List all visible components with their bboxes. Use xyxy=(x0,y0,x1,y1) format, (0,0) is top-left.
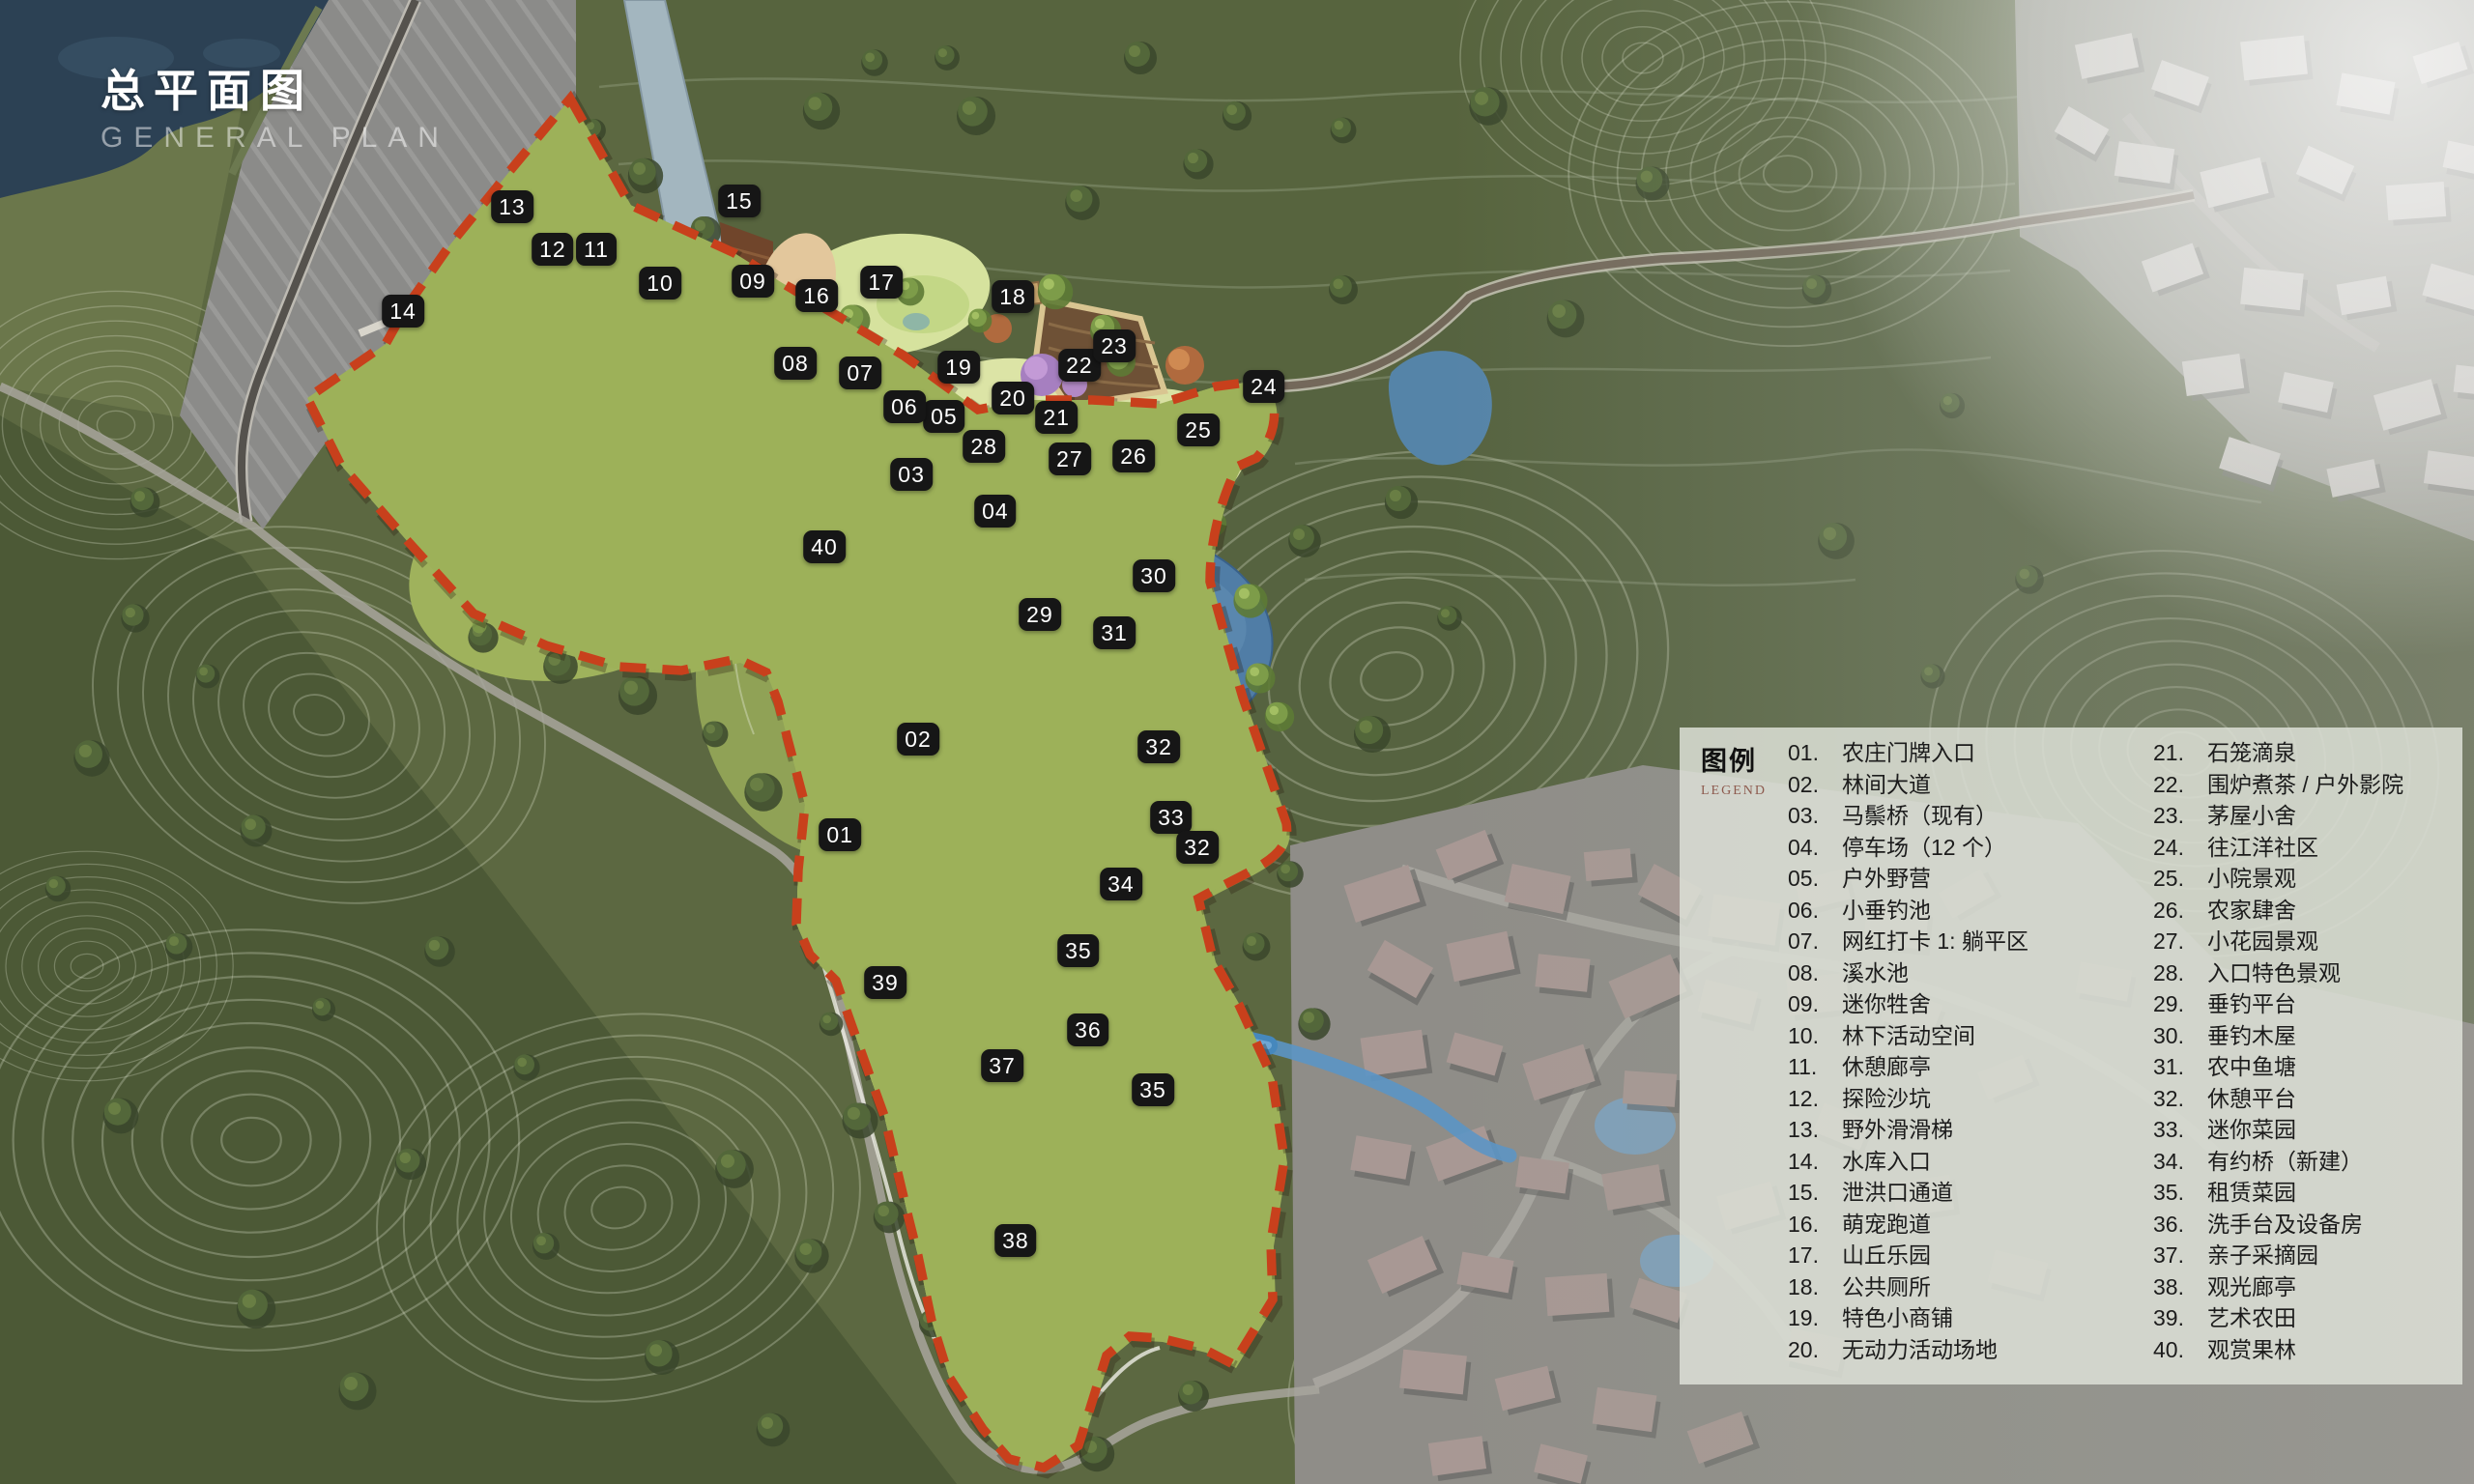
legend-item-number: 28. xyxy=(2153,957,2207,989)
map-marker-16[interactable]: 16 xyxy=(795,279,838,312)
legend-item-number: 15. xyxy=(1788,1177,1842,1209)
legend-item-label: 小花园景观 xyxy=(2207,928,2318,954)
legend-item-17: 17.山丘乐园 xyxy=(1788,1240,2028,1271)
map-marker-34[interactable]: 34 xyxy=(1100,868,1142,900)
legend-item-number: 40. xyxy=(2153,1334,2207,1366)
map-marker-02[interactable]: 02 xyxy=(897,723,939,756)
map-marker-21[interactable]: 21 xyxy=(1035,401,1078,434)
legend-item-label: 特色小商铺 xyxy=(1842,1305,1953,1330)
legend-item-11: 11.休憩廊亭 xyxy=(1788,1051,2028,1083)
map-marker-26[interactable]: 26 xyxy=(1112,440,1155,472)
legend-item-37: 37.亲子采摘园 xyxy=(2153,1240,2403,1271)
legend-item-label: 休憩平台 xyxy=(2207,1086,2296,1111)
legend-item-label: 石笼滴泉 xyxy=(2207,740,2296,765)
legend-item-12: 12.探险沙坑 xyxy=(1788,1083,2028,1115)
legend-item-label: 溪水池 xyxy=(1842,960,1909,985)
legend-item-label: 萌宠跑道 xyxy=(1842,1212,1931,1237)
legend-item-label: 野外滑滑梯 xyxy=(1842,1117,1953,1142)
legend-item-number: 26. xyxy=(2153,895,2207,927)
map-marker-35[interactable]: 35 xyxy=(1057,934,1100,967)
legend-column-1: 01.农庄门牌入口02.林间大道03.马鬃桥（现有）04.停车场（12 个）05… xyxy=(1788,737,2028,1365)
map-marker-32[interactable]: 32 xyxy=(1176,831,1219,864)
legend-item-number: 02. xyxy=(1788,769,1842,801)
legend-item-32: 32.休憩平台 xyxy=(2153,1083,2403,1115)
legend-item-number: 25. xyxy=(2153,863,2207,895)
legend-item-20: 20.无动力活动场地 xyxy=(1788,1334,2028,1366)
map-marker-05[interactable]: 05 xyxy=(923,400,965,433)
legend-item-25: 25.小院景观 xyxy=(2153,863,2403,895)
map-marker-13[interactable]: 13 xyxy=(491,190,533,223)
map-marker-20[interactable]: 20 xyxy=(992,382,1034,414)
legend-item-number: 24. xyxy=(2153,832,2207,864)
legend-item-33: 33.迷你菜园 xyxy=(2153,1114,2403,1146)
legend-item-35: 35.租赁菜园 xyxy=(2153,1177,2403,1209)
legend-item-05: 05.户外野营 xyxy=(1788,863,2028,895)
legend-item-label: 公共厕所 xyxy=(1842,1274,1931,1299)
legend-item-03: 03.马鬃桥（现有） xyxy=(1788,800,2028,832)
legend-item-38: 38.观光廊亭 xyxy=(2153,1271,2403,1303)
legend-item-number: 37. xyxy=(2153,1240,2207,1271)
map-marker-39[interactable]: 39 xyxy=(864,966,906,999)
map-marker-17[interactable]: 17 xyxy=(860,266,903,299)
legend-item-label: 垂钓平台 xyxy=(2207,991,2296,1016)
legend-item-number: 05. xyxy=(1788,863,1842,895)
map-marker-25[interactable]: 25 xyxy=(1177,414,1220,446)
legend-item-number: 35. xyxy=(2153,1177,2207,1209)
legend-item-number: 22. xyxy=(2153,769,2207,801)
map-marker-31[interactable]: 31 xyxy=(1093,616,1136,649)
legend-item-34: 34.有约桥（新建） xyxy=(2153,1146,2403,1178)
map-marker-28[interactable]: 28 xyxy=(963,430,1005,463)
legend-item-label: 农中鱼塘 xyxy=(2207,1054,2296,1079)
legend-item-number: 19. xyxy=(1788,1302,1842,1334)
legend-item-label: 山丘乐园 xyxy=(1842,1242,1931,1268)
map-marker-38[interactable]: 38 xyxy=(994,1224,1037,1257)
legend-item-label: 往江洋社区 xyxy=(2207,835,2318,860)
legend-item-number: 01. xyxy=(1788,737,1842,769)
legend-item-number: 16. xyxy=(1788,1209,1842,1241)
legend-item-26: 26.农家肆舍 xyxy=(2153,895,2403,927)
legend-panel: 图例 LEGEND 01.农庄门牌入口02.林间大道03.马鬃桥（现有）04.停… xyxy=(1680,728,2462,1384)
legend-item-label: 艺术农田 xyxy=(2207,1305,2296,1330)
legend-item-label: 小院景观 xyxy=(2207,866,2296,891)
map-marker-35[interactable]: 35 xyxy=(1132,1073,1174,1106)
legend-item-label: 马鬃桥（现有） xyxy=(1842,803,1998,828)
legend-item-29: 29.垂钓平台 xyxy=(2153,988,2403,1020)
legend-item-22: 22.围炉煮茶 / 户外影院 xyxy=(2153,769,2403,801)
map-marker-11[interactable]: 11 xyxy=(576,233,617,266)
legend-item-number: 29. xyxy=(2153,988,2207,1020)
map-marker-09[interactable]: 09 xyxy=(732,265,774,298)
legend-item-label: 网红打卡 1: 躺平区 xyxy=(1842,928,2028,954)
legend-item-label: 无动力活动场地 xyxy=(1842,1337,1998,1362)
legend-item-number: 34. xyxy=(2153,1146,2207,1178)
legend-item-number: 18. xyxy=(1788,1271,1842,1303)
legend-item-number: 27. xyxy=(2153,926,2207,957)
map-marker-33[interactable]: 33 xyxy=(1150,801,1193,834)
legend-column-2: 21.石笼滴泉22.围炉煮茶 / 户外影院23.茅屋小舍24.往江洋社区25.小… xyxy=(2153,737,2403,1365)
legend-item-40: 40.观赏果林 xyxy=(2153,1334,2403,1366)
legend-item-label: 小垂钓池 xyxy=(1842,898,1931,923)
legend-item-label: 租赁菜园 xyxy=(2207,1180,2296,1205)
legend-item-number: 09. xyxy=(1788,988,1842,1020)
map-marker-12[interactable]: 12 xyxy=(532,233,574,266)
map-marker-36[interactable]: 36 xyxy=(1067,1013,1109,1046)
legend-item-02: 02.林间大道 xyxy=(1788,769,2028,801)
legend-item-number: 03. xyxy=(1788,800,1842,832)
map-marker-30[interactable]: 30 xyxy=(1133,559,1175,592)
legend-item-13: 13.野外滑滑梯 xyxy=(1788,1114,2028,1146)
legend-item-04: 04.停车场（12 个） xyxy=(1788,832,2028,864)
legend-item-18: 18.公共厕所 xyxy=(1788,1271,2028,1303)
legend-item-number: 33. xyxy=(2153,1114,2207,1146)
map-marker-27[interactable]: 27 xyxy=(1049,442,1091,475)
legend-item-21: 21.石笼滴泉 xyxy=(2153,737,2403,769)
map-marker-03[interactable]: 03 xyxy=(890,458,933,491)
legend-item-number: 07. xyxy=(1788,926,1842,957)
map-marker-19[interactable]: 19 xyxy=(937,351,980,384)
legend-subtitle: LEGEND xyxy=(1701,784,1767,799)
legend-item-label: 观光廊亭 xyxy=(2207,1274,2296,1299)
legend-item-19: 19.特色小商铺 xyxy=(1788,1302,2028,1334)
legend-item-16: 16.萌宠跑道 xyxy=(1788,1209,2028,1241)
legend-item-label: 停车场（12 个） xyxy=(1842,835,2006,860)
legend-item-label: 亲子采摘园 xyxy=(2207,1242,2318,1268)
map-marker-23[interactable]: 23 xyxy=(1093,329,1136,362)
legend-item-31: 31.农中鱼塘 xyxy=(2153,1051,2403,1083)
legend-item-number: 32. xyxy=(2153,1083,2207,1115)
legend-item-number: 10. xyxy=(1788,1020,1842,1052)
legend-item-number: 20. xyxy=(1788,1334,1842,1366)
legend-item-09: 09.迷你牲舍 xyxy=(1788,988,2028,1020)
legend-item-number: 31. xyxy=(2153,1051,2207,1083)
legend-item-number: 39. xyxy=(2153,1302,2207,1334)
legend-item-label: 有约桥（新建） xyxy=(2207,1149,2363,1174)
legend-item-08: 08.溪水池 xyxy=(1788,957,2028,989)
map-marker-24[interactable]: 24 xyxy=(1243,370,1285,403)
legend-item-07: 07.网红打卡 1: 躺平区 xyxy=(1788,926,2028,957)
legend-item-39: 39.艺术农田 xyxy=(2153,1302,2403,1334)
legend-item-label: 围炉煮茶 / 户外影院 xyxy=(2207,772,2403,797)
map-marker-40[interactable]: 40 xyxy=(803,530,846,563)
legend-item-label: 茅屋小舍 xyxy=(2207,803,2296,828)
legend-item-30: 30.垂钓木屋 xyxy=(2153,1020,2403,1052)
legend-item-label: 迷你牲舍 xyxy=(1842,991,1931,1016)
legend-item-27: 27.小花园景观 xyxy=(2153,926,2403,957)
legend-item-number: 04. xyxy=(1788,832,1842,864)
legend-item-10: 10.林下活动空间 xyxy=(1788,1020,2028,1052)
legend-item-label: 农庄门牌入口 xyxy=(1842,740,1975,765)
legend-item-label: 水库入口 xyxy=(1842,1149,1931,1174)
legend-item-24: 24.往江洋社区 xyxy=(2153,832,2403,864)
legend-item-label: 林下活动空间 xyxy=(1842,1023,1975,1048)
legend-item-number: 17. xyxy=(1788,1240,1842,1271)
map-marker-04[interactable]: 04 xyxy=(974,495,1017,528)
map-marker-07[interactable]: 07 xyxy=(839,357,881,389)
legend-item-number: 11. xyxy=(1788,1051,1842,1083)
map-marker-32[interactable]: 32 xyxy=(1137,730,1180,763)
legend-item-number: 06. xyxy=(1788,895,1842,927)
legend-item-label: 林间大道 xyxy=(1842,772,1931,797)
legend-item-06: 06.小垂钓池 xyxy=(1788,895,2028,927)
legend-title: 图例 xyxy=(1701,740,1767,778)
legend-item-number: 12. xyxy=(1788,1083,1842,1115)
map-marker-37[interactable]: 37 xyxy=(981,1049,1023,1082)
legend-item-label: 观赏果林 xyxy=(2207,1337,2296,1362)
map-marker-18[interactable]: 18 xyxy=(992,280,1034,313)
map-marker-06[interactable]: 06 xyxy=(883,390,926,423)
legend-item-label: 休憩廊亭 xyxy=(1842,1054,1931,1079)
legend-item-28: 28.入口特色景观 xyxy=(2153,957,2403,989)
legend-item-label: 泄洪口通道 xyxy=(1842,1180,1953,1205)
map-marker-29[interactable]: 29 xyxy=(1019,598,1061,631)
map-marker-01[interactable]: 01 xyxy=(819,818,861,851)
legend-item-number: 38. xyxy=(2153,1271,2207,1303)
legend-header: 图例 LEGEND xyxy=(1701,740,1767,799)
legend-item-01: 01.农庄门牌入口 xyxy=(1788,737,2028,769)
legend-item-label: 探险沙坑 xyxy=(1842,1086,1931,1111)
legend-item-label: 户外野营 xyxy=(1842,866,1931,891)
legend-item-23: 23.茅屋小舍 xyxy=(2153,800,2403,832)
legend-item-label: 垂钓木屋 xyxy=(2207,1023,2296,1048)
legend-item-number: 30. xyxy=(2153,1020,2207,1052)
legend-item-number: 21. xyxy=(2153,737,2207,769)
map-marker-10[interactable]: 10 xyxy=(639,267,681,300)
legend-item-15: 15.泄洪口通道 xyxy=(1788,1177,2028,1209)
legend-item-label: 迷你菜园 xyxy=(2207,1117,2296,1142)
legend-item-number: 36. xyxy=(2153,1209,2207,1241)
map-marker-08[interactable]: 08 xyxy=(774,347,817,380)
map-marker-14[interactable]: 14 xyxy=(382,295,424,328)
legend-item-label: 农家肆舍 xyxy=(2207,898,2296,923)
legend-item-14: 14.水库入口 xyxy=(1788,1146,2028,1178)
map-marker-15[interactable]: 15 xyxy=(718,185,761,217)
legend-item-label: 入口特色景观 xyxy=(2207,960,2341,985)
general-plan-page: 总平面图 GENERAL PLAN 0102030405060708091011… xyxy=(0,0,2474,1484)
legend-item-label: 洗手台及设备房 xyxy=(2207,1212,2363,1237)
legend-item-number: 13. xyxy=(1788,1114,1842,1146)
legend-item-number: 08. xyxy=(1788,957,1842,989)
legend-item-36: 36.洗手台及设备房 xyxy=(2153,1209,2403,1241)
legend-item-number: 23. xyxy=(2153,800,2207,832)
legend-item-number: 14. xyxy=(1788,1146,1842,1178)
